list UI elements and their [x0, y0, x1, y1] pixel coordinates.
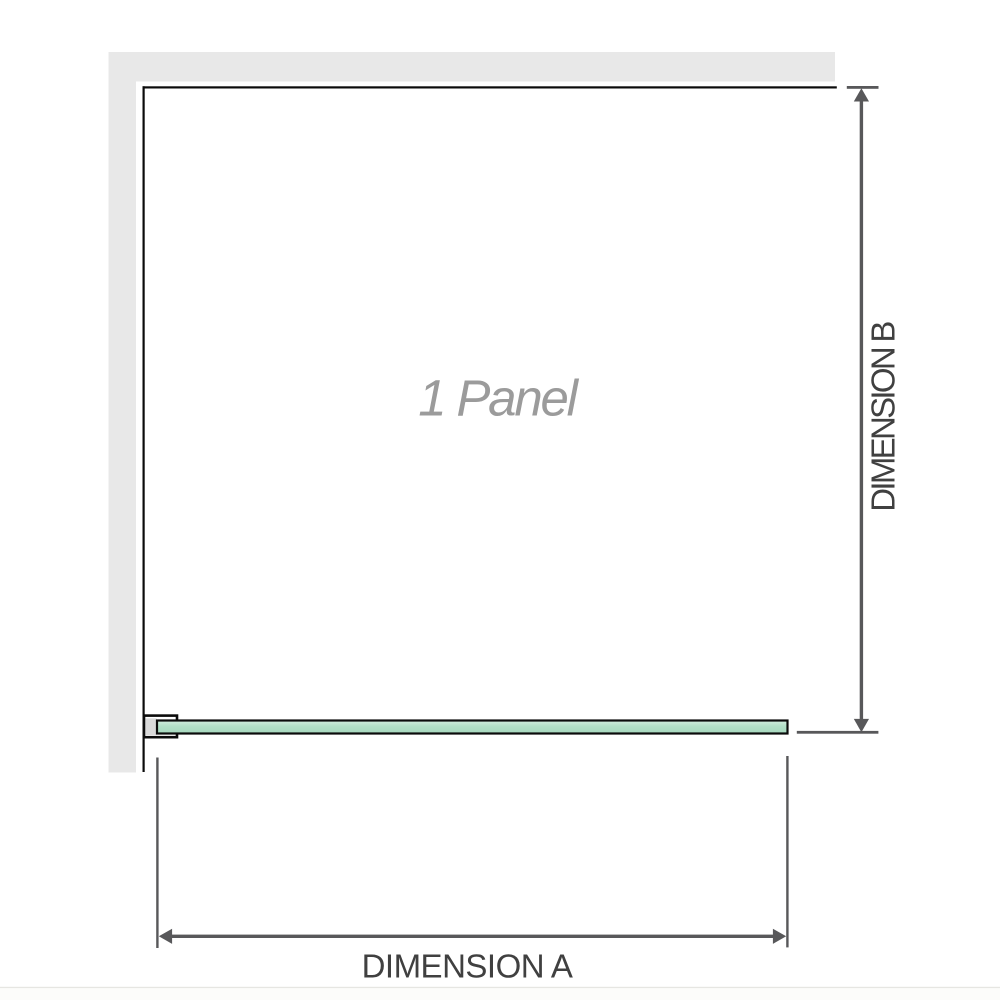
svg-text:DIMENSION B: DIMENSION B	[865, 322, 902, 512]
svg-text:DIMENSION A: DIMENSION A	[362, 948, 573, 985]
svg-text:1 Panel: 1 Panel	[418, 370, 579, 427]
